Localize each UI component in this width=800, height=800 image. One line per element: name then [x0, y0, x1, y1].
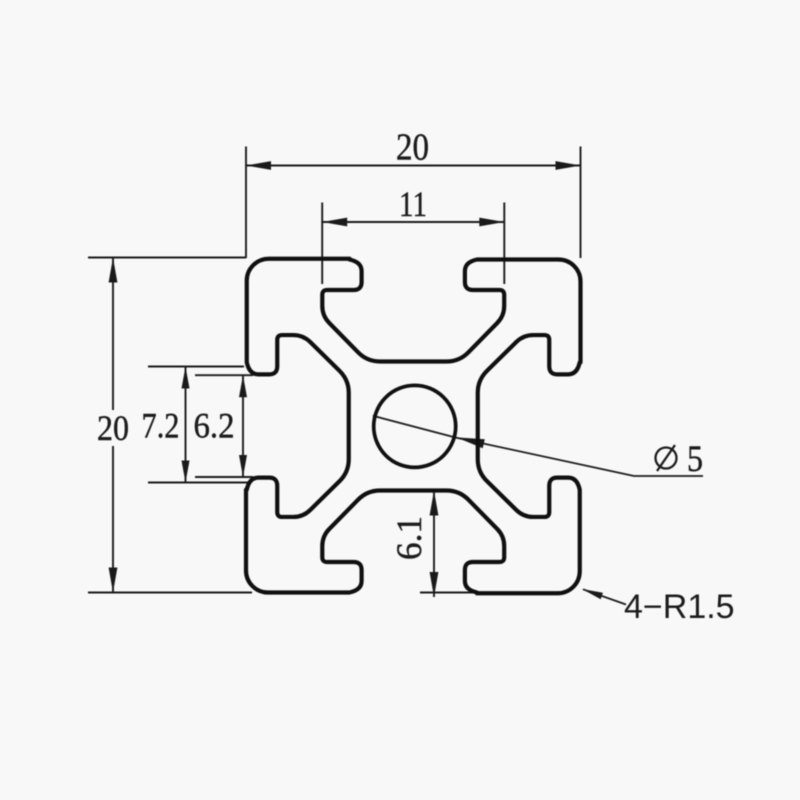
svg-text:6.1: 6.1	[389, 516, 429, 560]
svg-text:5: 5	[687, 439, 703, 480]
svg-text:11: 11	[399, 184, 427, 224]
svg-text:6.2: 6.2	[194, 406, 235, 446]
svg-text:20: 20	[396, 127, 429, 169]
svg-text:7.2: 7.2	[142, 406, 180, 446]
svg-text:20: 20	[97, 408, 129, 448]
svg-text:4−R1.5: 4−R1.5	[624, 588, 735, 626]
